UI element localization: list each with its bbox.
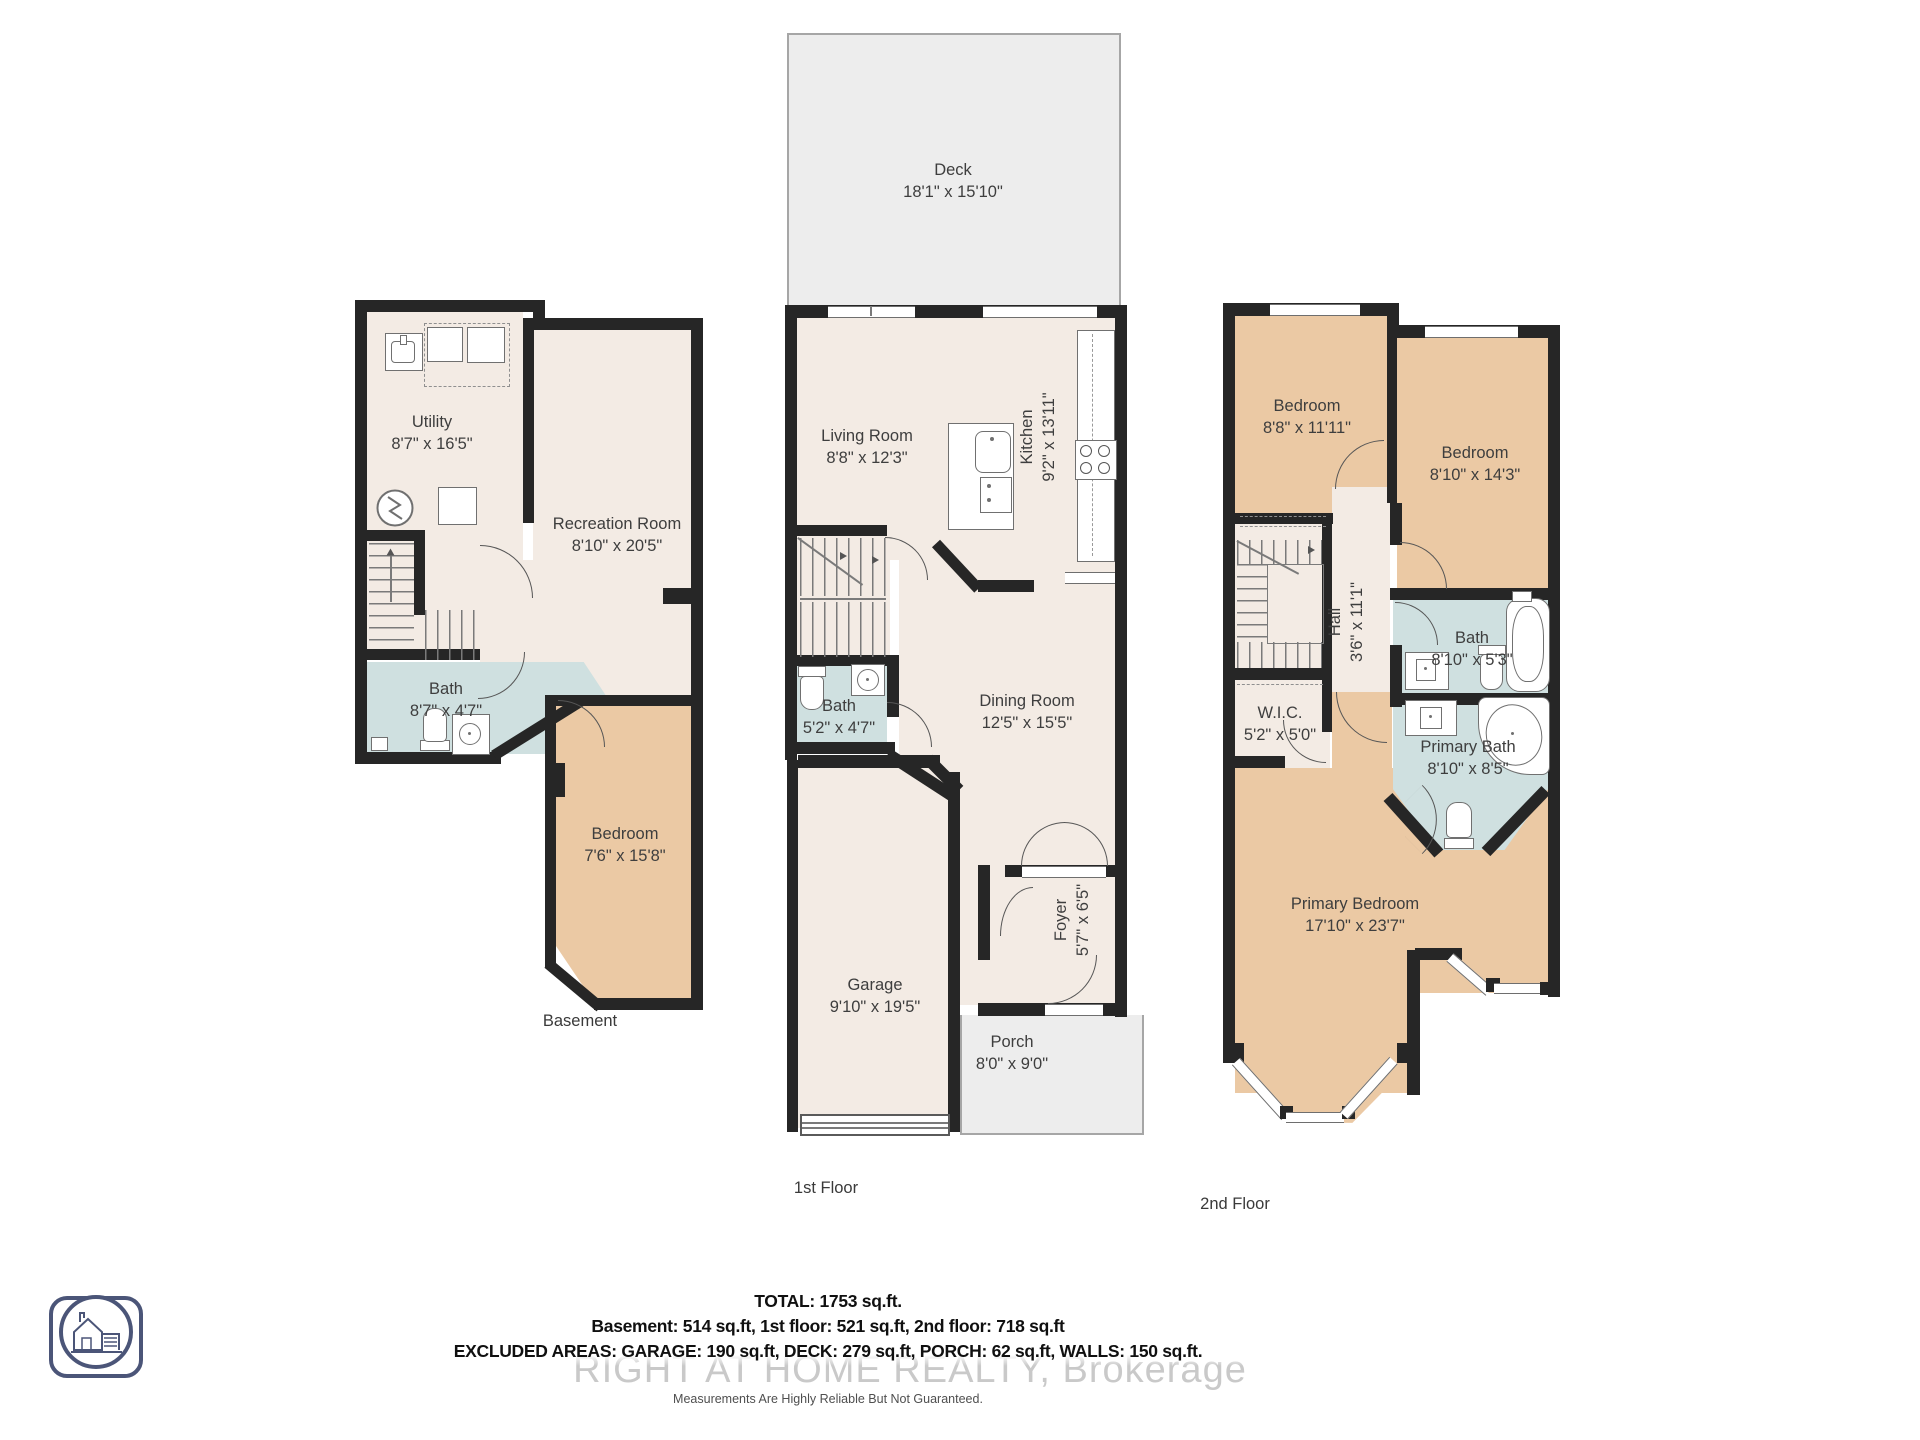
room-label-bedroom1: Bedroom 8'8" x 11'11" [1227, 395, 1387, 439]
room-dims: 8'0" x 9'0" [932, 1053, 1092, 1075]
room-dims: 8'7" x 16'5" [352, 433, 512, 455]
room-label-first-bath: Bath 5'2" x 4'7" [759, 695, 919, 739]
stove-icon [1075, 440, 1117, 480]
pass-through-window [1065, 572, 1115, 584]
wall [414, 530, 425, 615]
summary-excluded: EXCLUDED AREAS: GARAGE: 190 sq.ft, DECK:… [428, 1339, 1228, 1364]
closet-dashed-line [1240, 516, 1326, 527]
bay-window [1286, 1112, 1344, 1123]
closet-dashed-line [1237, 684, 1323, 685]
room-label-primary-bath: Primary Bath 8'10" x 8'5" [1388, 736, 1548, 780]
room-dims: 8'10" x 20'5" [537, 535, 697, 557]
room-name: Primary Bath [1388, 736, 1548, 758]
sink-icon [1405, 700, 1457, 736]
room-name: Bath [1392, 627, 1552, 649]
room-name: Deck [873, 159, 1033, 181]
garage-door [800, 1114, 950, 1136]
area-summary: TOTAL: 1753 sq.ft. Basement: 514 sq.ft, … [428, 1289, 1228, 1364]
room-dims: 5'2" x 4'7" [759, 717, 919, 739]
front-door-opening [1045, 1004, 1103, 1016]
room-dims: 8'10" x 14'3" [1395, 464, 1555, 486]
wall [785, 742, 895, 754]
room-name: Bath [759, 695, 919, 717]
floor-caption-first: 1st Floor [746, 1179, 906, 1198]
room-name: Kitchen [1016, 355, 1038, 519]
room-dims: 5'2" x 5'0" [1200, 724, 1360, 746]
summary-floors: Basement: 514 sq.ft, 1st floor: 521 sq.f… [428, 1314, 1228, 1339]
wall [1390, 503, 1402, 545]
washer-icon [427, 327, 463, 362]
room-dims: 3'6" x 11'1" [1346, 540, 1368, 704]
wall [663, 588, 691, 604]
wall [691, 318, 703, 1010]
wall [355, 300, 545, 312]
room-label-basement-bath: Bath 8'7" x 4'7" [366, 678, 526, 722]
room-name: Hall [1324, 540, 1346, 704]
room-label-foyer: Foyer 5'7" x 6'5" [1050, 838, 1094, 1002]
room-label-wic: W.I.C. 5'2" x 5'0" [1200, 702, 1360, 746]
room-label-second-bath: Bath 8'10" x 5'3" [1392, 627, 1552, 671]
room-name: Bedroom [1227, 395, 1387, 417]
stairs-arrow-line [390, 556, 392, 602]
wall [1223, 668, 1332, 680]
wall [978, 865, 990, 960]
stairs-landing-line [800, 598, 886, 600]
dishwasher-icon [980, 477, 1012, 513]
room-name: Dining Room [947, 690, 1107, 712]
stairs-arrow [872, 556, 879, 564]
stairs [1237, 642, 1322, 668]
room-dims: 9'10" x 19'5" [795, 996, 955, 1018]
wall [785, 525, 887, 536]
room-name: W.I.C. [1200, 702, 1360, 724]
room-name: Porch [932, 1031, 1092, 1053]
summary-total: TOTAL: 1753 sq.ft. [428, 1289, 1228, 1314]
room-name: Recreation Room [537, 513, 697, 535]
stairs-arrow [840, 552, 847, 560]
room-label-hall: Hall 3'6" x 11'1" [1324, 540, 1368, 704]
sink-icon [371, 737, 388, 751]
sliding-door-window [828, 306, 915, 318]
wall [1407, 950, 1420, 1095]
sump-pump-icon [375, 488, 415, 528]
room-dims: 18'1" x 15'10" [873, 181, 1033, 203]
stairs-up-arrow [387, 549, 395, 556]
room-label-garage: Garage 9'10" x 19'5" [795, 974, 955, 1018]
room-name: Bedroom [545, 823, 705, 845]
room-dims: 17'10" x 23'7" [1255, 915, 1455, 937]
room-name: Bedroom [1395, 442, 1555, 464]
wall [948, 772, 960, 1132]
room-dims: 8'8" x 11'11" [1227, 417, 1387, 439]
window [1494, 983, 1542, 994]
room-dims: 5'7" x 6'5" [1072, 838, 1094, 1002]
room-dims: 8'7" x 4'7" [366, 700, 526, 722]
dryer-icon [467, 327, 505, 363]
toilet-icon [1446, 802, 1472, 838]
wall [1397, 1043, 1415, 1063]
wall [978, 580, 1034, 592]
stairs [425, 610, 479, 660]
room-label-utility: Utility 8'7" x 16'5" [352, 411, 512, 455]
wall [787, 760, 798, 1132]
room-label-living: Living Room 8'8" x 12'3" [787, 425, 947, 469]
room-label-porch: Porch 8'0" x 9'0" [932, 1031, 1092, 1075]
room-label-recreation: Recreation Room 8'10" x 20'5" [537, 513, 697, 557]
room-garage [798, 768, 948, 1128]
window [1270, 304, 1360, 316]
stairs [800, 602, 886, 657]
stairs-railing [1267, 564, 1324, 644]
room-name: Utility [352, 411, 512, 433]
wall [594, 998, 703, 1010]
room-dims: 8'8" x 12'3" [787, 447, 947, 469]
floor-plan-canvas: Utility 8'7" x 16'5" Recreation Room 8'1… [0, 0, 1920, 1440]
door-arc [480, 545, 533, 598]
room-name: Bath [366, 678, 526, 700]
wall [533, 318, 703, 330]
wall [798, 755, 940, 768]
floor-caption-basement: Basement [500, 1012, 660, 1031]
sink-icon [851, 664, 885, 696]
room-label-kitchen: Kitchen 9'2" x 13'11" [1016, 355, 1060, 519]
sink-icon [975, 431, 1011, 473]
room-dims: 12'5" x 15'5" [947, 712, 1107, 734]
floor-caption-second: 2nd Floor [1155, 1195, 1315, 1214]
room-label-deck: Deck 18'1" x 15'10" [873, 159, 1033, 203]
room-dims: 8'10" x 8'5" [1388, 758, 1548, 780]
faucet-icon [1512, 591, 1532, 602]
room-name: Primary Bedroom [1255, 893, 1455, 915]
house-logo [46, 1288, 146, 1380]
room-label-bedroom2: Bedroom 8'10" x 14'3" [1395, 442, 1555, 486]
window-mullion [870, 306, 872, 316]
stairs-arrow [1308, 546, 1315, 554]
room-label-basement-bedroom: Bedroom 7'6" x 15'8" [545, 823, 705, 867]
room-name: Garage [795, 974, 955, 996]
room-dims: 9'2" x 13'11" [1038, 355, 1060, 519]
room-name: Living Room [787, 425, 947, 447]
wall [1223, 756, 1285, 768]
wall [1540, 982, 1560, 995]
window [1425, 326, 1518, 338]
room-label-dining: Dining Room 12'5" x 15'5" [947, 690, 1107, 734]
equipment-box-icon [438, 487, 477, 525]
wall [523, 318, 534, 523]
room-dims: 7'6" x 15'8" [545, 845, 705, 867]
window [983, 306, 1097, 318]
wall [1115, 305, 1127, 1017]
room-dims: 8'10" x 5'3" [1392, 649, 1552, 671]
room-label-primary-bedroom: Primary Bedroom 17'10" x 23'7" [1255, 893, 1455, 937]
room-name: Foyer [1050, 838, 1072, 1002]
toilet-icon [1444, 838, 1474, 849]
laundry-sink-icon [385, 333, 423, 371]
disclaimer-text: Measurements Are Highly Reliable But Not… [628, 1392, 1028, 1406]
stairs [1237, 564, 1267, 642]
wall [545, 763, 565, 797]
stairs [369, 543, 414, 649]
